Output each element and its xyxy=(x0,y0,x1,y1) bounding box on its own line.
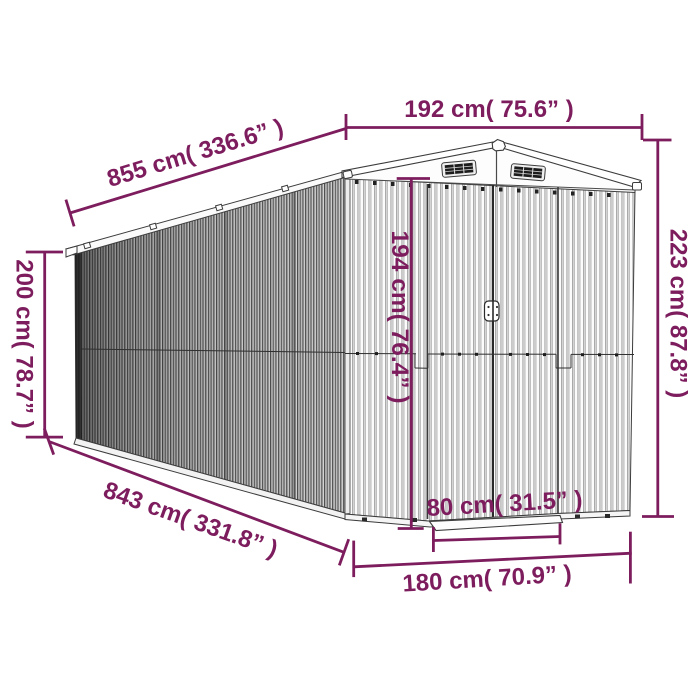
svg-text:200 cm( 78.7” ): 200 cm( 78.7” ) xyxy=(11,259,38,428)
svg-text:194 cm( 76.4” ): 194 cm( 76.4” ) xyxy=(386,231,413,404)
svg-text:192 cm( 75.6” ): 192 cm( 75.6” ) xyxy=(404,96,573,123)
svg-text:223 cm( 87.8” ): 223 cm( 87.8” ) xyxy=(665,229,692,398)
